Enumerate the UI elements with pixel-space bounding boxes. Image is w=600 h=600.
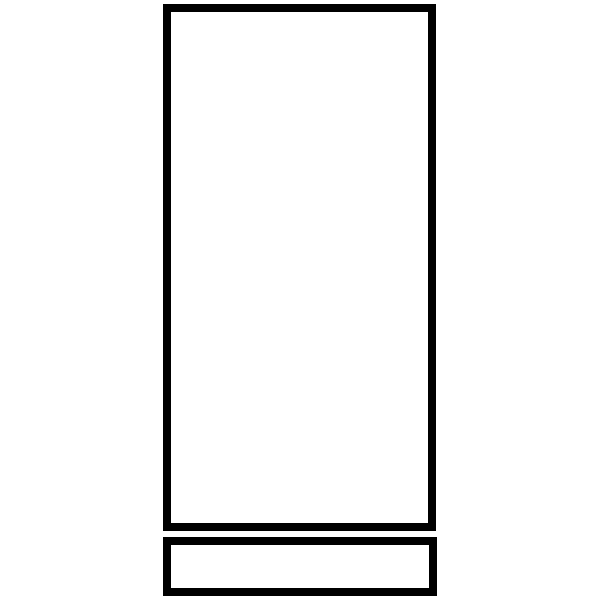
tall-rectangle-outline (167, 8, 432, 527)
line-drawing (0, 0, 600, 600)
drawing-canvas (0, 0, 600, 600)
base-rectangle-outline (167, 541, 433, 592)
